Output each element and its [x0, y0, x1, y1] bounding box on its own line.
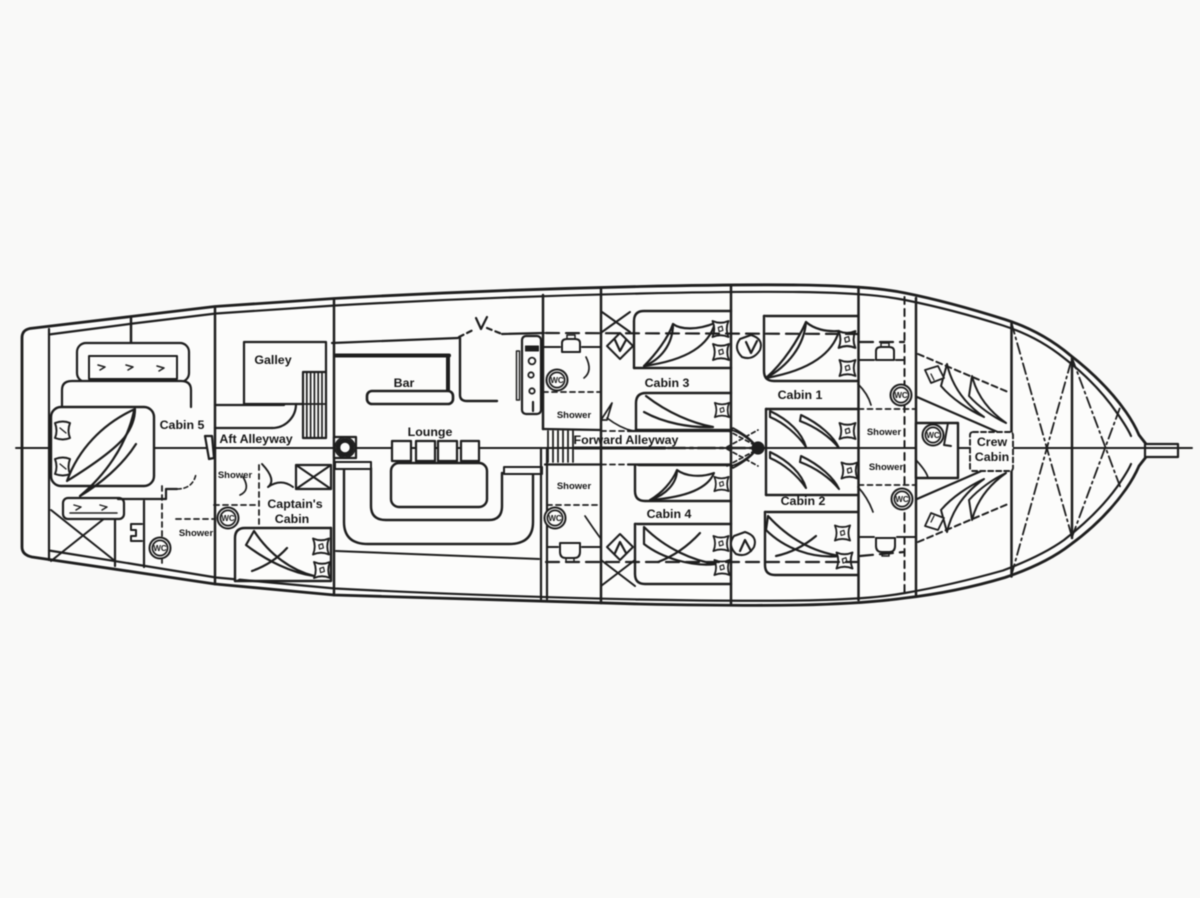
svg-text:Shower: Shower	[557, 481, 592, 492]
svg-text:Shower: Shower	[869, 462, 904, 473]
svg-text:Cabin: Cabin	[275, 512, 309, 526]
svg-text:WC: WC	[550, 376, 564, 385]
svg-text:Forward Alleyway: Forward Alleyway	[574, 433, 679, 447]
svg-text:Cabin 3: Cabin 3	[645, 376, 690, 390]
svg-text:WC: WC	[895, 495, 909, 504]
svg-text:Cabin 2: Cabin 2	[781, 494, 826, 508]
svg-text:Cabin 5: Cabin 5	[160, 418, 205, 432]
svg-text:Aft Alleyway: Aft Alleyway	[219, 432, 292, 446]
svg-text:WC: WC	[548, 514, 562, 523]
svg-text:Cabin: Cabin	[975, 450, 1009, 464]
svg-text:Crew: Crew	[977, 435, 1008, 449]
svg-text:WC: WC	[153, 544, 167, 553]
svg-text:Shower: Shower	[218, 470, 253, 481]
svg-text:WC: WC	[894, 391, 908, 400]
svg-text:WC: WC	[926, 431, 940, 440]
svg-text:Cabin 4: Cabin 4	[647, 507, 692, 521]
svg-text:Shower: Shower	[867, 427, 902, 438]
svg-text:WC: WC	[221, 514, 235, 523]
svg-text:Galley: Galley	[254, 353, 291, 367]
svg-text:Bar: Bar	[394, 376, 415, 390]
svg-text:Shower: Shower	[557, 410, 592, 421]
svg-text:Shower: Shower	[179, 528, 214, 539]
svg-text:Cabin 1: Cabin 1	[778, 388, 823, 402]
svg-text:Lounge: Lounge	[408, 425, 453, 439]
svg-text:Captain's: Captain's	[267, 497, 322, 511]
